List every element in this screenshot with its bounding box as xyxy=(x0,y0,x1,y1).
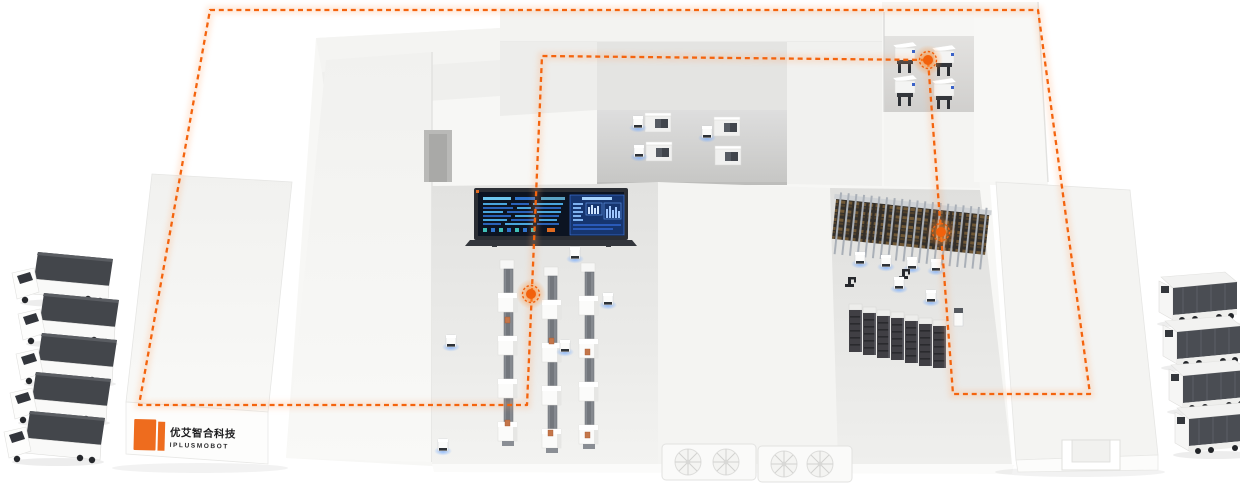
buffer-rack-unit xyxy=(849,304,862,352)
fan-icon xyxy=(713,449,739,475)
buffer-rack-unit xyxy=(891,312,904,360)
machine-cabinet xyxy=(715,146,741,165)
hvac-unit xyxy=(662,444,756,480)
truck xyxy=(4,411,105,466)
buffer-rack-unit xyxy=(919,318,932,366)
machine-cabinet xyxy=(646,142,672,161)
route-waypoint-marker xyxy=(926,217,956,247)
logo-company-name: 优艾智合科技 xyxy=(170,426,236,441)
center-walkway xyxy=(658,182,838,464)
elevated-platform xyxy=(286,52,432,462)
right-truck-fleet xyxy=(1157,272,1240,459)
fan-icon xyxy=(675,449,701,475)
left-warehouse-block: 优艾智合科技 IPLUSMOBOT xyxy=(112,174,292,473)
logo-mark-icon xyxy=(133,419,156,451)
status-dashboard xyxy=(465,188,637,247)
fan-icon xyxy=(807,451,833,477)
buffer-rack-unit xyxy=(905,315,918,363)
dock-door-notch xyxy=(1062,440,1120,470)
machine-cabinet xyxy=(645,113,671,132)
dashboard-right-panel xyxy=(570,195,624,235)
door-slot xyxy=(424,130,452,182)
route-waypoint-marker xyxy=(913,45,943,75)
left-truck-fleet xyxy=(4,252,119,466)
machine-cabinet xyxy=(714,117,740,136)
hvac-unit xyxy=(758,446,852,482)
picking-robot xyxy=(954,308,963,326)
buffer-rack-unit xyxy=(863,307,876,355)
factory-scene: 优艾智合科技 IPLUSMOBOT xyxy=(0,0,1240,488)
logo-mark-icon xyxy=(157,422,165,451)
buffer-rack-unit xyxy=(877,310,890,358)
fan-icon xyxy=(771,451,797,477)
route-waypoint-marker xyxy=(516,279,546,309)
mezzanine-machine-room xyxy=(597,42,787,185)
truck xyxy=(1173,403,1240,459)
wall-right-of-mezzanine xyxy=(787,42,882,186)
mid-roof xyxy=(500,10,882,42)
